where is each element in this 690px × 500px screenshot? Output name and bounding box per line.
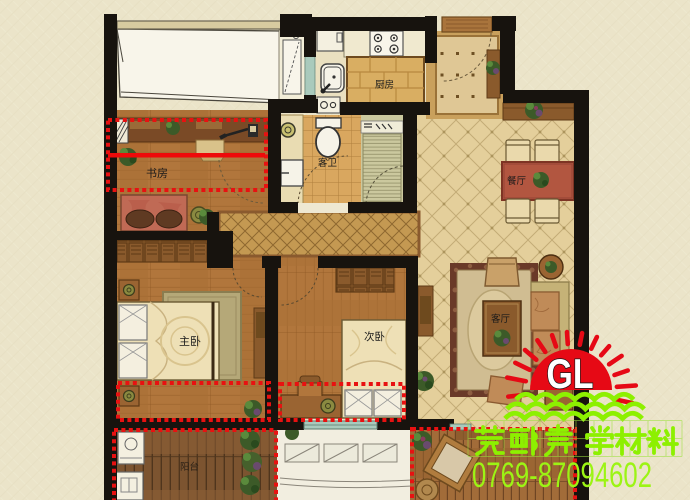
svg-text:客卫: 客卫 (318, 157, 338, 169)
svg-text:餐厅: 餐厅 (507, 175, 527, 187)
svg-text:主卧: 主卧 (179, 335, 201, 348)
svg-text:书房: 书房 (146, 167, 168, 180)
svg-text:GL: GL (547, 350, 594, 397)
svg-text:阳台: 阳台 (180, 461, 199, 473)
svg-text:厨房: 厨房 (375, 79, 394, 91)
svg-text:客厅: 客厅 (491, 313, 511, 325)
svg-text:次卧: 次卧 (364, 330, 385, 343)
svg-text:0769-87094602: 0769-87094602 (472, 456, 652, 495)
